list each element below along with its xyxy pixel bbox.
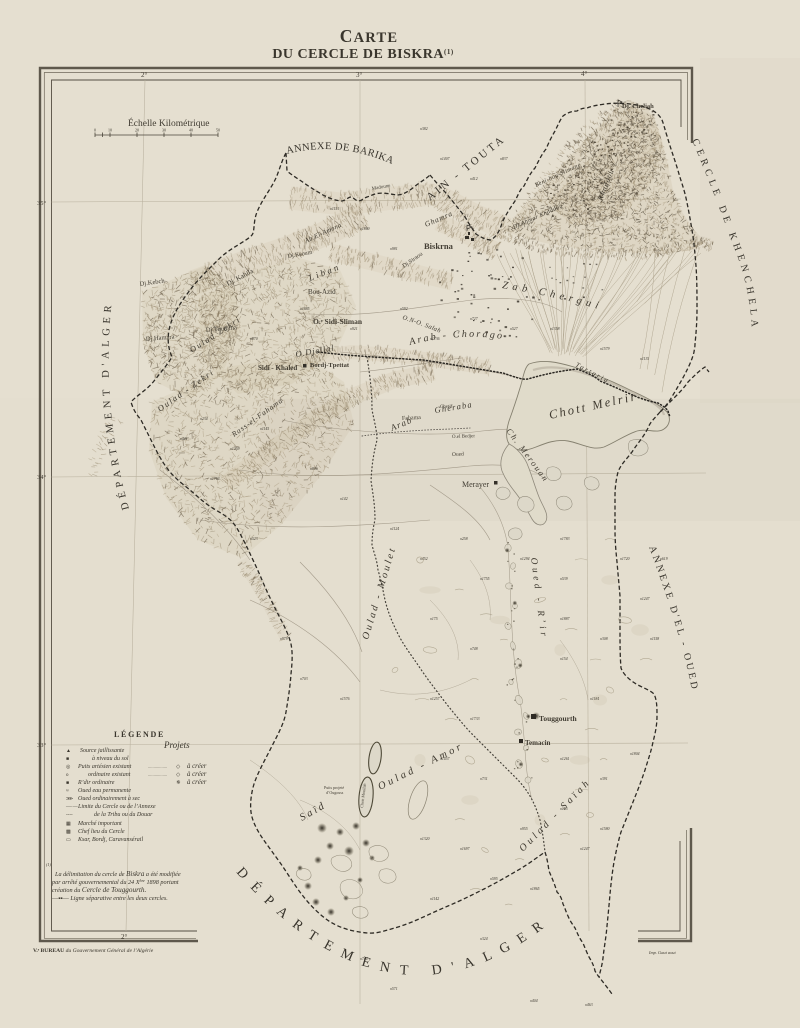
svg-text:o463: o463 (585, 1003, 593, 1007)
svg-text:✵: ✵ (176, 779, 181, 786)
svg-text:o308: o308 (600, 637, 608, 641)
svg-text:o1294: o1294 (520, 557, 530, 561)
svg-text:à créer: à créer (187, 763, 207, 770)
svg-text:o1261: o1261 (560, 757, 570, 761)
svg-text:Projets: Projets (163, 740, 190, 750)
svg-text:Oued eau permanente: Oued eau permanente (78, 788, 131, 794)
svg-text:o1407: o1407 (440, 157, 451, 161)
svg-text:O.ᵉ Sidi-Sliman: O.ᵉ Sidi-Sliman (313, 317, 363, 326)
svg-text:o619: o619 (660, 557, 668, 561)
svg-text:Oued ordinairement à sec: Oued ordinairement à sec (78, 796, 140, 802)
svg-text:o1685: o1685 (300, 307, 310, 311)
svg-text:o1151: o1151 (330, 207, 339, 211)
svg-text:o955: o955 (520, 827, 528, 831)
svg-text:o1736: o1736 (430, 337, 440, 341)
svg-text:Sidi - Khaled: Sidi - Khaled (258, 364, 297, 372)
svg-text:o703: o703 (300, 677, 308, 681)
svg-text:o412: o412 (470, 177, 478, 181)
svg-text:o1145: o1145 (260, 427, 269, 431)
svg-text:o731: o731 (480, 777, 488, 781)
svg-text:■: ■ (66, 757, 69, 762)
svg-text:Puits artésien existant: Puits artésien existant (77, 764, 132, 770)
svg-text:Chetif: Chetif (440, 405, 453, 410)
svg-text:o1755: o1755 (480, 577, 490, 581)
svg-text:30: 30 (162, 128, 166, 133)
svg-text:■: ■ (66, 781, 69, 786)
svg-text:o1733: o1733 (470, 717, 480, 721)
svg-text:o1720: o1720 (620, 557, 630, 561)
svg-text:o571: o571 (390, 987, 398, 991)
svg-text:R’dir ordinaire: R’dir ordinaire (77, 780, 115, 786)
svg-text:Biskrna: Biskrna (424, 241, 454, 251)
svg-text:o592: o592 (400, 307, 408, 311)
svg-text:o324: o324 (480, 937, 488, 941)
svg-text:à niveau du sol: à niveau du sol (92, 756, 129, 762)
svg-text:⋙: ⋙ (66, 796, 73, 802)
svg-text:◎: ◎ (66, 764, 71, 770)
svg-text:o1124: o1124 (390, 527, 399, 531)
svg-text:o727: o727 (470, 317, 479, 321)
svg-text:≈: ≈ (66, 789, 69, 794)
svg-text:DU CERCLE DE BISKRA(1): DU CERCLE DE BISKRA(1) (272, 47, 454, 62)
svg-text:o452: o452 (420, 557, 428, 561)
svg-text:o1860: o1860 (360, 227, 370, 231)
svg-text:Chef lieu du Cercle: Chef lieu du Cercle (78, 828, 125, 835)
svg-text:▲: ▲ (66, 749, 71, 754)
svg-text:33°: 33° (37, 742, 47, 749)
svg-text:par arrêté gouvernemental du 2: par arrêté gouvernemental du 24 Xbre 189… (51, 878, 179, 886)
svg-text:o837: o837 (500, 157, 509, 161)
svg-text:o1697: o1697 (460, 847, 471, 851)
svg-text:o1259: o1259 (230, 447, 240, 451)
svg-text:o258: o258 (460, 537, 468, 541)
svg-text:o1783: o1783 (560, 537, 570, 541)
svg-text:0: 0 (94, 128, 96, 133)
svg-text:----: ---- (66, 813, 73, 818)
svg-text:▩: ▩ (66, 829, 71, 835)
svg-text:o391: o391 (600, 777, 608, 781)
svg-text:10: 10 (108, 128, 112, 133)
svg-text:O.el Bedjer: O.el Bedjer (452, 434, 476, 440)
svg-text:o1576: o1576 (340, 697, 350, 701)
svg-text:Touggourth: Touggourth (539, 714, 577, 723)
svg-text:Échelle Kilométrique: Échelle Kilométrique (128, 117, 210, 129)
svg-text:Merayer: Merayer (462, 480, 489, 489)
svg-text:o175: o175 (430, 617, 438, 621)
svg-text:La délimitation du cercle de B: La délimitation du cercle de Biskra a ét… (54, 870, 181, 878)
svg-text:o744: o744 (360, 957, 368, 961)
svg-text:o1257: o1257 (430, 697, 441, 701)
svg-text:o748: o748 (470, 647, 478, 651)
svg-text:Ksar, Bordj, Caravansérail: Ksar, Bordj, Caravansérail (77, 837, 143, 843)
svg-text:o1358: o1358 (550, 327, 560, 331)
svg-text:35°: 35° (37, 200, 47, 207)
svg-text:Limite du Cercle ou de l’Annex: Limite du Cercle ou de l’Annexe (77, 804, 156, 810)
svg-text:o595: o595 (490, 877, 498, 881)
svg-text:o981: o981 (390, 247, 398, 251)
svg-text:o154: o154 (560, 657, 568, 661)
svg-text:V.ᵉ BUREAU du Gouvernement Gén: V.ᵉ BUREAU du Gouvernement Général de l’… (33, 948, 154, 954)
svg-text:o979: o979 (280, 637, 288, 641)
svg-text:LÉGENDE: LÉGENDE (114, 729, 165, 739)
svg-text:o1804: o1804 (630, 752, 640, 756)
svg-text:Oued: Oued (452, 452, 464, 458)
svg-text:40: 40 (189, 128, 193, 133)
svg-text:o1579: o1579 (600, 347, 610, 351)
svg-text:o1887: o1887 (560, 617, 571, 621)
svg-text:Bordj-Tpettat: Bordj-Tpettat (310, 362, 350, 369)
svg-text:o1865: o1865 (530, 887, 540, 891)
svg-text:o1115: o1115 (640, 357, 649, 361)
svg-text:à créer: à créer (187, 779, 207, 786)
svg-text:o539: o539 (560, 577, 568, 581)
svg-text:Fahama: Fahama (402, 415, 422, 422)
svg-text:▦: ▦ (66, 821, 71, 827)
svg-text:o921: o921 (350, 327, 358, 331)
svg-text:o1457: o1457 (440, 757, 451, 761)
svg-text:2°: 2° (121, 933, 128, 941)
svg-text:20: 20 (135, 128, 139, 133)
svg-text:Marché important: Marché important (77, 821, 122, 827)
svg-text:34°: 34° (37, 474, 47, 481)
svg-text:de la Tribu ou du Douar: de la Tribu ou du Douar (94, 812, 153, 818)
svg-text:o404: o404 (530, 999, 538, 1003)
svg-text:Temacin: Temacin (525, 739, 551, 747)
svg-text:o527: o527 (510, 327, 519, 331)
svg-text:o806: o806 (310, 467, 318, 471)
svg-text:création du Cercle de Touggour: création du Cercle de Touggourth. (52, 886, 146, 894)
svg-text:(1): (1) (46, 862, 51, 867)
svg-text:—·—: —·— (65, 805, 79, 810)
svg-text:o1158: o1158 (650, 637, 659, 641)
svg-text:o1247: o1247 (580, 847, 591, 851)
svg-text:Bou-Azid: Bou-Azid (308, 288, 336, 296)
svg-text:o234: o234 (200, 417, 208, 421)
svg-text:o523: o523 (250, 537, 258, 541)
svg-text:ordinaire existant: ordinaire existant (88, 772, 131, 778)
svg-text:4°: 4° (581, 70, 588, 78)
svg-text:d’Ougouss: d’Ougouss (326, 790, 344, 795)
svg-text:o441: o441 (180, 437, 188, 441)
svg-text:Dj. Cheliah: Dj. Cheliah (622, 103, 654, 110)
svg-text:.................: ................. (148, 772, 167, 777)
svg-text:à créer: à créer (187, 771, 207, 778)
svg-text:o142: o142 (340, 497, 348, 501)
svg-text:o155: o155 (560, 807, 568, 811)
svg-text:o1580: o1580 (600, 827, 610, 831)
svg-text:o1247: o1247 (640, 597, 651, 601)
svg-text:Source jaillissante: Source jaillissante (80, 748, 125, 754)
svg-text:o1763: o1763 (210, 477, 220, 481)
svg-text:―▪▪― Ligne séparative entre le: ―▪▪― Ligne séparative entre les deux cer… (51, 895, 168, 902)
svg-text:o382: o382 (420, 127, 428, 131)
svg-text:o870: o870 (250, 337, 258, 341)
svg-text:o1320: o1320 (420, 837, 430, 841)
svg-text:2°: 2° (141, 71, 148, 79)
svg-text:Imp. Gaut aout: Imp. Gaut aout (648, 950, 676, 955)
svg-text:o1142: o1142 (430, 897, 439, 901)
svg-text:50: 50 (216, 128, 220, 133)
svg-text:.................: ................. (148, 764, 167, 769)
svg-text:3°: 3° (356, 71, 363, 79)
svg-text:▭: ▭ (66, 838, 71, 843)
